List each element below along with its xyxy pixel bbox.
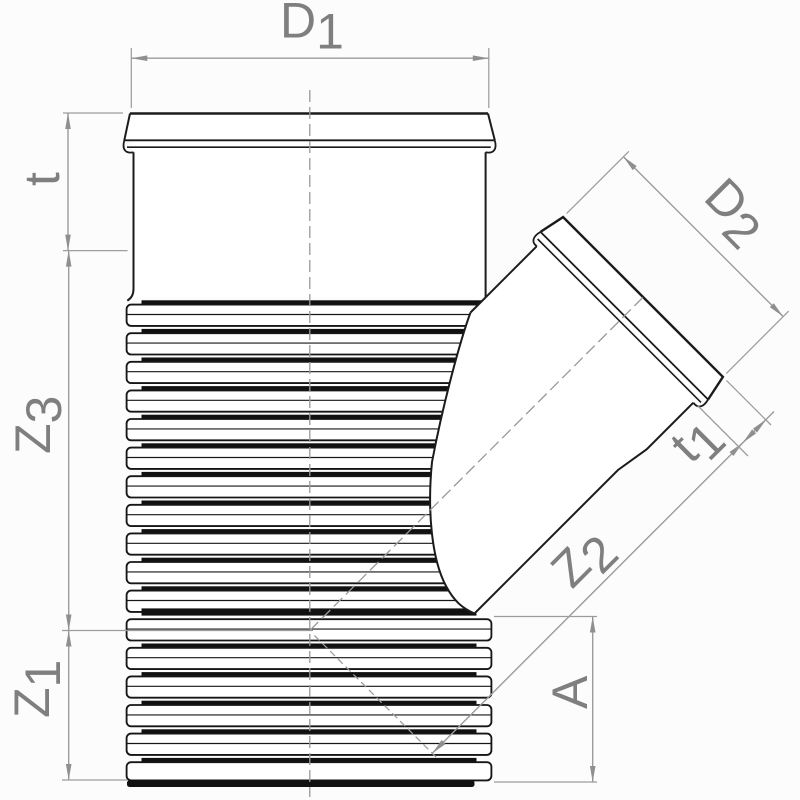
- svg-text:A: A: [542, 675, 598, 709]
- svg-text:t: t: [14, 172, 70, 186]
